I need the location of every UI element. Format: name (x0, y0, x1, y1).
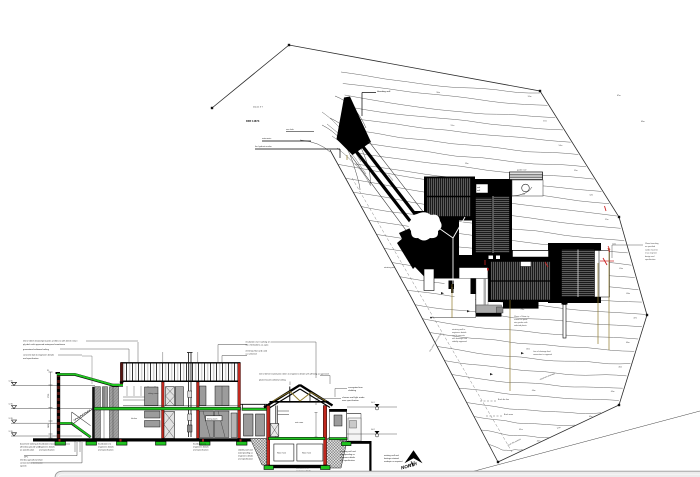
svg-text:all below ground walls: all below ground walls (20, 446, 40, 449)
svg-text:and specification: and specification (238, 458, 253, 461)
svg-text:100 x 50mm treated pine rafter: 100 x 50mm treated pine rafters to engin… (259, 373, 329, 376)
svg-text:concrete slab to engineers det: concrete slab to engineers details (23, 354, 54, 357)
svg-text:and specification: and specification (23, 357, 39, 360)
svg-text:56m: 56m (528, 96, 532, 98)
svg-text:12.35: 12.35 (9, 404, 13, 406)
svg-text:44m: 44m (611, 391, 615, 393)
svg-text:kitchen: kitchen (131, 417, 137, 420)
svg-text:design and: design and (645, 256, 654, 258)
svg-text:2700: 2700 (48, 394, 50, 398)
svg-text:46m: 46m (526, 348, 530, 350)
svg-text:49m: 49m (619, 268, 623, 270)
svg-text:wet room: wet room (295, 421, 304, 424)
svg-text:guaranteed softwood ceiling: guaranteed softwood ceiling (23, 348, 50, 351)
svg-text:52m: 52m (589, 194, 593, 196)
svg-text:54m: 54m (559, 145, 563, 147)
svg-text:Water Tank: Water Tank (277, 452, 286, 455)
svg-text:existing wall and: existing wall and (384, 454, 399, 457)
svg-text:47m: 47m (633, 317, 637, 319)
svg-text:GL/2: GL/2 (371, 429, 375, 431)
svg-text:12.35: 12.35 (9, 380, 13, 382)
svg-text:Bush fire line: Bush fire line (498, 398, 509, 401)
svg-text:and specification: and specification (39, 449, 55, 452)
svg-text:12.35: 12.35 (9, 431, 13, 433)
svg-text:sitting room: sitting room (148, 392, 159, 395)
svg-text:150 x 50mm treated pine joists: 150 x 50mm treated pine joists at 450 cr… (23, 340, 78, 343)
svg-text:chrome roof light under: chrome roof light under (342, 396, 365, 399)
svg-text:Hoarding wall: Hoarding wall (377, 90, 391, 93)
svg-text:53m: 53m (574, 170, 578, 172)
svg-text:foundations to: foundations to (193, 443, 207, 446)
svg-text:nt as engineer: nt as engineer (645, 252, 657, 255)
svg-text:new specification: new specification (342, 399, 359, 402)
svg-text:53m: 53m (465, 163, 469, 165)
svg-text:as specified: as specified (645, 246, 655, 248)
svg-text:connection to approval: connection to approval (533, 353, 553, 356)
svg-text:Datum X Y: Datum X Y (253, 106, 264, 109)
svg-text:150 dia agricultural drain: 150 dia agricultural drain (20, 459, 44, 462)
svg-text:DRF 14873: DRF 14873 (246, 119, 260, 123)
svg-text:GL/1: GL/1 (371, 402, 375, 404)
svg-text:55m: 55m (543, 121, 547, 123)
svg-text:as selected: as selected (246, 353, 258, 356)
svg-text:48m: 48m (626, 293, 630, 295)
svg-text:foundations to: foundations to (296, 467, 309, 470)
svg-text:waterproofing as: waterproofing as (238, 452, 253, 455)
svg-text:retaining wall: retaining wall (384, 266, 396, 269)
svg-text:watermain: watermain (262, 137, 271, 140)
svg-text:stability wall and: stability wall and (238, 449, 253, 452)
svg-text:can fit concrete: can fit concrete (452, 334, 465, 337)
svg-text:engineers details: engineers details (98, 446, 114, 449)
svg-text:chimney flue and cowl: chimney flue and cowl (246, 351, 268, 353)
svg-text:and specification: and specification (193, 449, 209, 452)
svg-text:Line of drainage final: Line of drainage final (533, 350, 551, 353)
svg-text:corrugated iron: corrugated iron (348, 386, 363, 389)
svg-text:50m: 50m (612, 244, 616, 246)
svg-text:stability approved: stability approved (452, 340, 467, 343)
svg-text:retaining wall and: retaining wall and (340, 450, 356, 453)
svg-text:12.35: 12.35 (9, 418, 13, 420)
svg-text:51m: 51m (605, 219, 609, 221)
svg-text:45m: 45m (618, 367, 622, 369)
svg-text:46m: 46m (626, 342, 630, 344)
svg-text:45m: 45m (641, 121, 645, 123)
svg-text:foundations to: foundations to (39, 443, 53, 446)
svg-text:foundations to: foundations to (98, 443, 112, 446)
svg-text:fire hydrant marker: fire hydrant marker (255, 145, 272, 148)
svg-text:basement tanking to: basement tanking to (20, 443, 40, 446)
svg-text:2400: 2400 (48, 424, 50, 428)
svg-text:47m: 47m (521, 309, 525, 311)
svg-text:rain garden with: rain garden with (514, 321, 527, 324)
svg-text:47m: 47m (617, 95, 621, 97)
svg-text:and specification: and specification (340, 459, 355, 462)
svg-text:RL: RL (47, 370, 49, 372)
svg-text:new kerb: new kerb (286, 128, 294, 131)
svg-text:underpin as required: underpin as required (384, 461, 402, 463)
svg-text:as specification: as specification (20, 449, 35, 452)
svg-text:screen on posts: screen on posts (514, 318, 527, 321)
svg-text:plaster board cathedral ceilin: plaster board cathedral ceiling (259, 379, 286, 382)
svg-text:50 x 50 battens as spec: 50 x 50 battens as spec (246, 344, 270, 347)
svg-text:44m: 44m (532, 390, 536, 392)
svg-text:DPC: DPC (24, 457, 29, 459)
svg-text:15mm x 50mm t.p.: 15mm x 50mm t.p. (514, 315, 530, 318)
svg-text:waterproofing as: waterproofing as (340, 453, 355, 456)
svg-text:engineers details: engineers details (39, 446, 55, 449)
svg-text:dining room: dining room (207, 418, 218, 420)
svg-text:and specification: and specification (98, 449, 114, 452)
svg-text:Bush zone: Bush zone (504, 414, 513, 416)
svg-text:43m: 43m (519, 429, 523, 431)
svg-text:spa: spa (522, 194, 525, 196)
svg-text:specification: specification (645, 258, 655, 261)
svg-text:engineers details: engineers details (193, 446, 209, 449)
svg-text:engineers details: engineers details (452, 331, 466, 334)
svg-text:selected plants: selected plants (514, 324, 527, 327)
svg-text:roof: roof (477, 187, 481, 189)
svg-text:ply deck with approved waterpr: ply deck with approved waterproof membra… (23, 343, 66, 346)
svg-text:engineers details: engineers details (340, 456, 355, 459)
svg-text:insulation over sarking on: insulation over sarking on (246, 341, 272, 344)
svg-text:sands moveme: sands moveme (645, 249, 658, 251)
svg-text:Water Tank: Water Tank (302, 452, 311, 455)
svg-text:footings retained: footings retained (384, 457, 399, 460)
svg-text:system: system (20, 465, 27, 468)
svg-text:engineers details: engineers details (238, 455, 253, 458)
svg-text:garden roof: garden roof (517, 170, 527, 172)
svg-text:cladding: cladding (348, 390, 357, 392)
svg-text:55m: 55m (451, 125, 455, 127)
svg-text:56m: 56m (436, 92, 440, 94)
svg-text:connected to stormwater: connected to stormwater (20, 462, 43, 465)
svg-text:retaining wall to: retaining wall to (452, 328, 465, 331)
svg-text:15mm benching: 15mm benching (645, 243, 658, 245)
svg-text:with drainage and: with drainage and (452, 337, 467, 340)
